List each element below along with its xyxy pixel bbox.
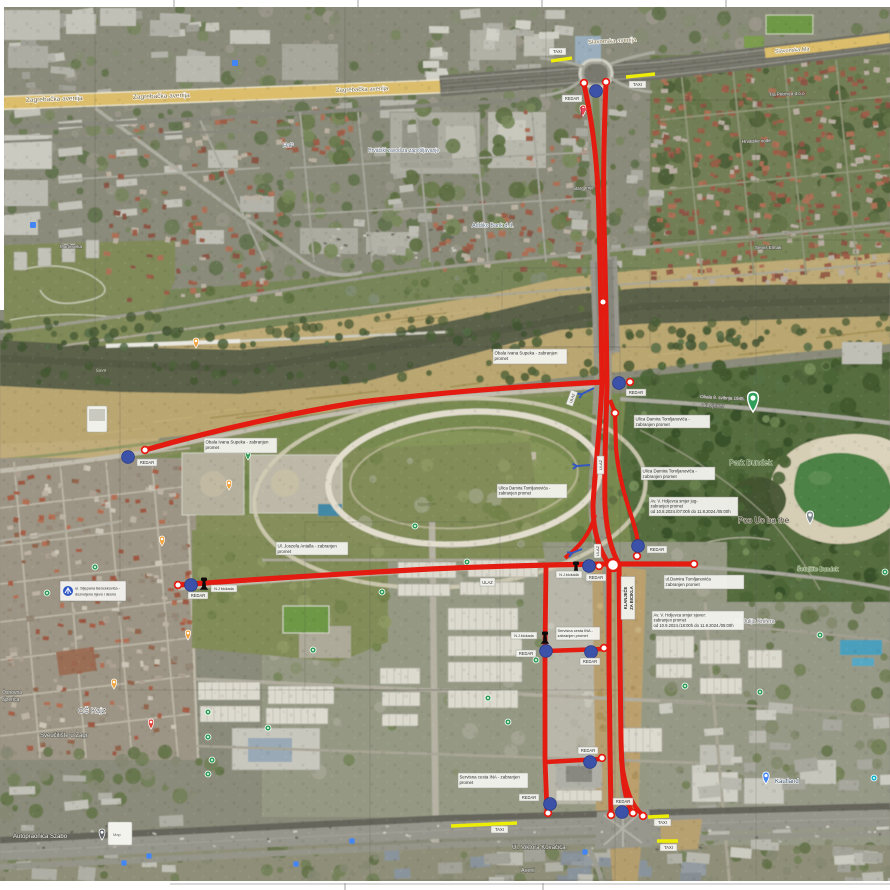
svg-text:od 10.9.2024./18:00h do 11.9.2: od 10.9.2024./18:00h do 11.9.2024./05:00… bbox=[654, 623, 735, 628]
svg-text:Park Bundek: Park Bundek bbox=[729, 458, 772, 467]
svg-text:TAXI: TAXI bbox=[633, 82, 642, 87]
svg-text:promet: promet bbox=[278, 549, 292, 554]
svg-text:Servisna cesta INA - zabranjen: Servisna cesta INA - zabranjen bbox=[460, 775, 521, 780]
svg-text:Hrvatske vode: Hrvatske vode bbox=[742, 138, 771, 144]
svg-text:REDAR: REDAR bbox=[522, 795, 536, 800]
svg-text:Poo Uo ba the: Poo Uo ba the bbox=[738, 516, 790, 525]
svg-text:ul. Stjepana Bencekovića -: ul. Stjepana Bencekovića - bbox=[75, 587, 121, 591]
svg-text:REDAR: REDAR bbox=[565, 96, 579, 101]
svg-text:REDAR: REDAR bbox=[191, 593, 205, 598]
svg-text:REDAR: REDAR bbox=[650, 547, 664, 552]
svg-text:Addiko Bank d.d.: Addiko Bank d.d. bbox=[472, 223, 514, 229]
svg-text:TAXI: TAXI bbox=[658, 820, 667, 825]
svg-text:Obala Ivana Supeka - zabranjen: Obala Ivana Supeka - zabranjen bbox=[206, 440, 270, 445]
svg-text:Obala Ivana Supeka - zabranjen: Obala Ivana Supeka - zabranjen bbox=[495, 351, 559, 356]
svg-text:zabranjen promet: zabranjen promet bbox=[499, 491, 532, 496]
svg-text:zabranjen promet: zabranjen promet bbox=[558, 633, 589, 638]
svg-text:TAXI: TAXI bbox=[664, 845, 673, 850]
svg-text:REDAR: REDAR bbox=[589, 575, 603, 580]
svg-text:Ul. Viktora Kovačića: Ul. Viktora Kovačića bbox=[512, 845, 566, 851]
svg-text:Map: Map bbox=[113, 832, 122, 837]
svg-text:hipodrom: hipodrom bbox=[418, 501, 437, 507]
svg-text:REDAR: REDAR bbox=[616, 799, 630, 804]
svg-text:Sveučilište u Zagr: Sveučilište u Zagr bbox=[40, 733, 88, 739]
svg-text:REDAR: REDAR bbox=[140, 460, 154, 465]
svg-text:Autopraonica Szabo: Autopraonica Szabo bbox=[13, 834, 68, 840]
svg-text:TAXI: TAXI bbox=[553, 49, 562, 54]
svg-text:promet: promet bbox=[495, 356, 509, 361]
svg-text:REDAR: REDAR bbox=[519, 651, 533, 656]
svg-text:KLANJEČE: KLANJEČE bbox=[623, 587, 628, 610]
svg-text:Ul. Joszefa Antalla - zabranje: Ul. Joszefa Antalla - zabranjen bbox=[278, 544, 338, 549]
svg-text:HaP: HaP bbox=[283, 143, 294, 149]
svg-text:N.J.blokada: N.J.blokada bbox=[559, 573, 579, 577]
svg-text:N.J blokada: N.J blokada bbox=[214, 587, 234, 591]
svg-text:REDAR: REDAR bbox=[629, 390, 643, 395]
svg-text:zabranjen promet: zabranjen promet bbox=[666, 582, 701, 587]
svg-text:Kaufland: Kaufland bbox=[775, 779, 799, 785]
svg-text:Šetalište Bundek: Šetalište Bundek bbox=[797, 566, 839, 573]
svg-text:ULAZ: ULAZ bbox=[482, 580, 493, 585]
svg-text:Servis Elmak: Servis Elmak bbox=[755, 245, 782, 250]
svg-text:ULAZ: ULAZ bbox=[595, 545, 600, 556]
svg-text:promet: promet bbox=[206, 445, 220, 450]
svg-text:od 10.8.2024./07:00h do 11.8.2: od 10.8.2024./07:00h do 11.8.2024./05:00… bbox=[651, 509, 732, 514]
svg-text:zabranjen promet: zabranjen promet bbox=[636, 422, 671, 427]
svg-text:ul.Damira Tomljanovića: ul.Damira Tomljanovića bbox=[666, 577, 712, 582]
svg-text:Ulica Damira Tomljanovića -: Ulica Damira Tomljanovića - bbox=[643, 469, 698, 474]
svg-text:Osnovna: Osnovna bbox=[2, 690, 22, 696]
svg-text:N.J.blokada: N.J.blokada bbox=[514, 634, 534, 638]
svg-text:Sava: Sava bbox=[96, 367, 107, 373]
svg-text:Staro trnje: Staro trnje bbox=[573, 185, 594, 191]
svg-text:eki sjever: eki sjever bbox=[701, 403, 724, 409]
svg-text:Ulica Damira Tomljanovića -: Ulica Damira Tomljanovića - bbox=[636, 417, 691, 422]
svg-text:zabranjen promet: zabranjen promet bbox=[643, 474, 678, 479]
svg-text:REDAR: REDAR bbox=[583, 659, 597, 664]
svg-text:promet: promet bbox=[460, 780, 474, 785]
svg-text:REDAR: REDAR bbox=[581, 748, 595, 753]
svg-text:Martinovka: Martinovka bbox=[60, 244, 83, 249]
svg-text:Aveni: Aveni bbox=[521, 868, 535, 874]
svg-text:ULAZ: ULAZ bbox=[598, 459, 603, 470]
svg-text:Hrvatski zavod za zapošljavanj: Hrvatski zavod za zapošljavanje bbox=[368, 148, 439, 154]
svg-text:ZA BICIKLA: ZA BICIKLA bbox=[629, 586, 634, 610]
svg-text:ajzerica: ajzerica bbox=[2, 697, 19, 703]
svg-text:OŠ Kajz: OŠ Kajz bbox=[78, 706, 106, 715]
svg-text:dozvoljeno lijevo i desno: dozvoljeno lijevo i desno bbox=[75, 593, 116, 597]
svg-text:TAXI: TAXI bbox=[495, 827, 504, 832]
